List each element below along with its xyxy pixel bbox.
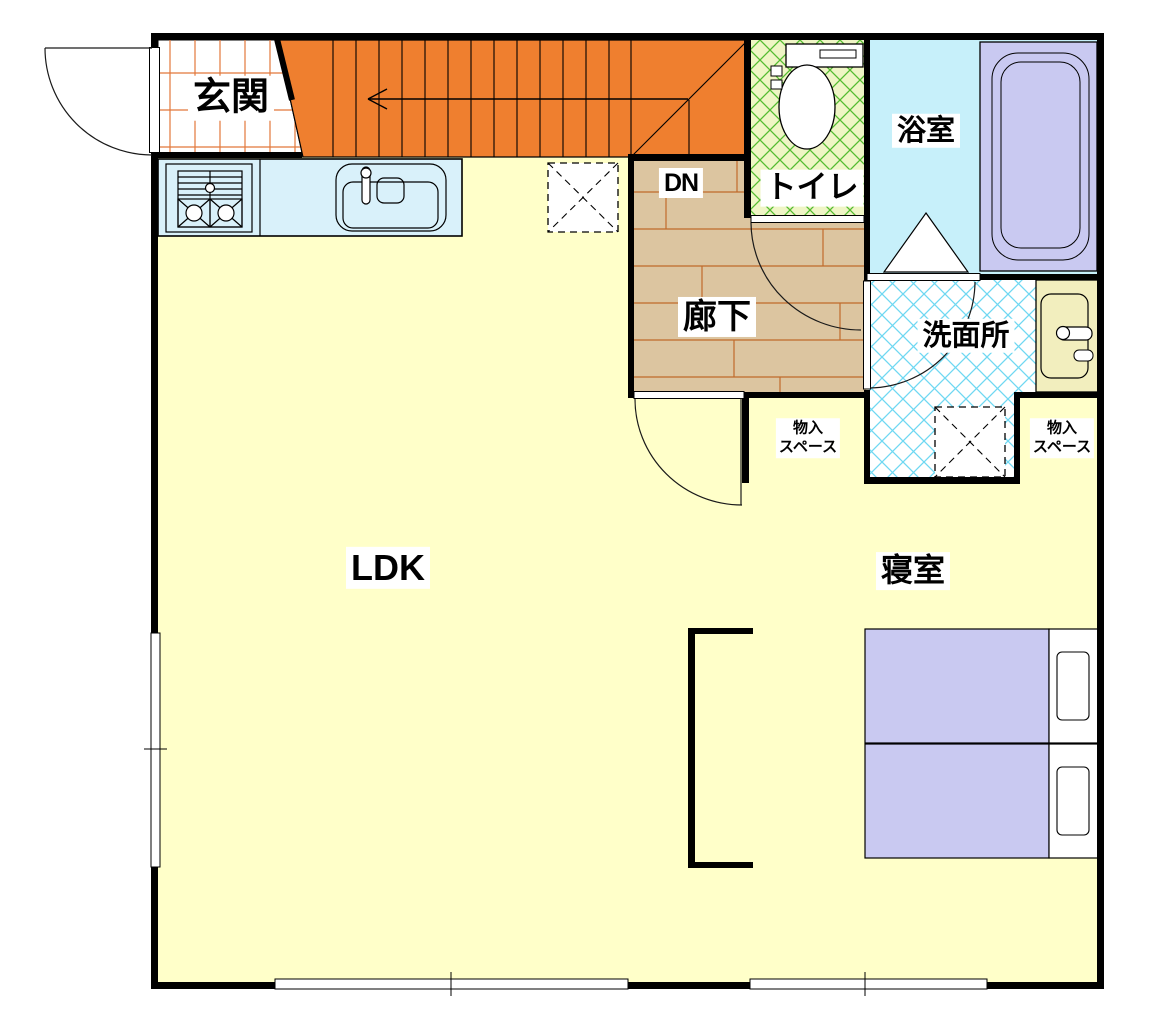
bathtub-icon: [980, 42, 1097, 271]
wall-washroom-left-lower: [864, 390, 870, 483]
genkan-label: 玄関: [188, 76, 274, 121]
stairs-down-label: DN: [659, 168, 703, 198]
pillow-icon: [1057, 652, 1089, 720]
wall-storage-right: [1014, 392, 1020, 483]
hallway-label: 廊下: [678, 297, 756, 337]
kitchen-counter: [158, 159, 462, 236]
bathroom-doorway: [867, 274, 980, 281]
bed-2: [865, 744, 1100, 858]
washroom-doorway: [864, 281, 871, 389]
bed-1: [865, 629, 1100, 743]
storage-left-label: 物入 スペース: [776, 418, 840, 458]
ldk-label: LDK: [346, 547, 430, 589]
window-left: [151, 633, 160, 867]
washroom-label: 洗面所: [917, 319, 1014, 353]
wall-top: [151, 33, 1104, 40]
wall-left: [151, 33, 158, 48]
appliance-space: [548, 163, 618, 232]
wall-toilet-left: [744, 40, 751, 218]
storage-left-label-line1: 物入: [779, 419, 837, 438]
bathroom: [867, 40, 1104, 274]
ldk-doorway: [634, 392, 744, 399]
wall-storage-right-top: [1014, 392, 1104, 398]
wall-left: [151, 867, 158, 989]
storage-right-label-line1: 物入: [1033, 419, 1091, 438]
wall-genkan-bottom: [151, 152, 302, 158]
wall-storage-left: [742, 392, 749, 483]
entrance-doorway: [150, 48, 160, 153]
entrance-door-swing: [45, 48, 152, 155]
wall-stairs-bottom: [628, 154, 751, 161]
floor-plan-drawing: [0, 0, 1173, 1023]
storage-right-label-line2: スペース: [1033, 438, 1091, 457]
floor-plan: 玄関 DN トイレ 浴室 廊下 洗面所 LDK 寝室 物入 スペース 物入 スペ…: [0, 0, 1173, 1023]
wall-washroom-bottom: [864, 477, 1020, 484]
wall-hallway-bottom: [744, 392, 870, 398]
window-bottom-right: [750, 979, 987, 989]
bathroom-label: 浴室: [892, 114, 960, 148]
wall-left: [151, 152, 158, 633]
bedroom-label: 寝室: [876, 552, 950, 590]
vanity-icon: [1036, 280, 1103, 392]
wall-right: [1097, 33, 1104, 989]
wall-toilet-bath-left: [864, 33, 870, 281]
wall-bath-bottom: [980, 274, 1104, 280]
pillow-icon: [1057, 767, 1089, 835]
wall-hallway-left: [628, 154, 634, 398]
toilet-doorway: [751, 216, 864, 223]
staircase: [277, 39, 748, 157]
storage-right-label: 物入 スペース: [1030, 418, 1094, 458]
storage-left-label-line2: スペース: [779, 438, 837, 457]
washer-space: [935, 407, 1005, 477]
toilet-label: トイレ: [761, 170, 864, 207]
